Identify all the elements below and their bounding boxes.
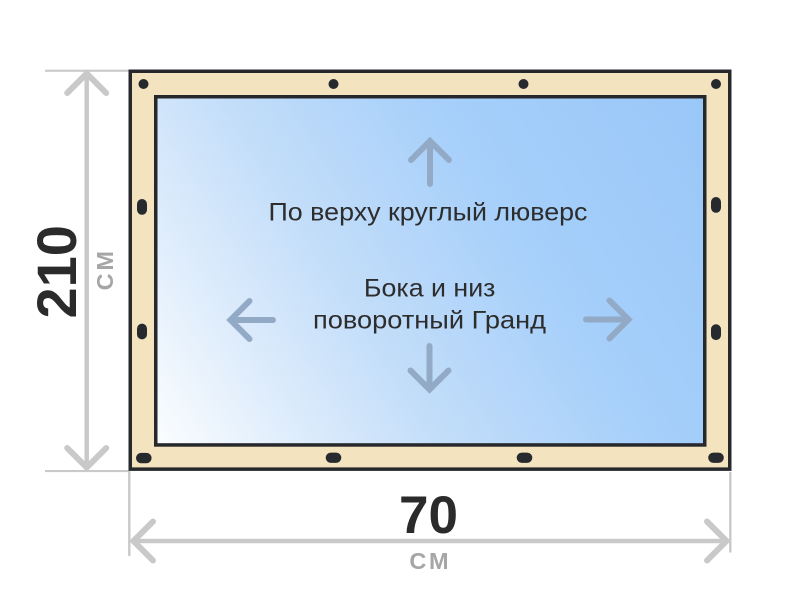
svg-text:СМ: СМ <box>409 548 451 574</box>
svg-text:210: 210 <box>25 225 88 318</box>
svg-text:СМ: СМ <box>92 248 118 290</box>
svg-text:70: 70 <box>399 486 458 545</box>
svg-text:поворотный Гранд: поворотный Гранд <box>313 306 546 334</box>
svg-text:Бока и низ: Бока и низ <box>364 275 496 303</box>
svg-text:По верху круглый люверс: По верху круглый люверс <box>269 199 588 227</box>
